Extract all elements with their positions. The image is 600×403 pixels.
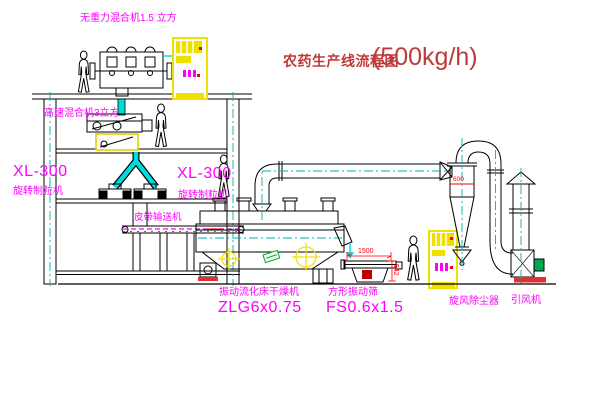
- control-cabinet-bottom: [429, 231, 457, 288]
- label-xl300-left: XL-300: [13, 164, 68, 180]
- worker-figure-ground: [408, 236, 419, 280]
- label-screen-model: FS0.6x1.5: [326, 300, 403, 316]
- cyclone-outlet-duct: [456, 141, 513, 274]
- label-top-mixer: 无重力混合机1.5 立方: [80, 14, 177, 24]
- label-belt-conveyor: 皮带输送机: [134, 213, 182, 223]
- cabinet-header: [176, 41, 202, 53]
- fan-motor: [534, 259, 544, 271]
- label-granulator-right: 旋转制粒机: [178, 191, 228, 201]
- label-cyclone: 旋风除尘器: [449, 297, 499, 307]
- vibration-motor: [198, 263, 218, 281]
- cabinet-display: [183, 70, 196, 77]
- label-screen-name: 方形振动筛: [328, 288, 378, 298]
- cad-drawing-canvas: 农药生产线流程图 (500kg/h) 无重力混合机1.5 立方 高速混合机3立方…: [0, 0, 600, 403]
- label-fan: 引风机: [511, 296, 541, 306]
- high-speed-mixer: [87, 99, 152, 150]
- granulator-right: [131, 184, 169, 199]
- dim-text-600: 600: [453, 177, 464, 184]
- control-cabinet-top: [173, 38, 207, 99]
- label-granulator-left: 旋转制粒机: [13, 187, 63, 197]
- worker-figure-roof: [78, 51, 89, 92]
- dryer-support: [313, 269, 333, 283]
- cabinet-display: [435, 263, 448, 271]
- dim-text-1500: 1500: [358, 248, 374, 255]
- gravity-free-mixer: [90, 47, 174, 96]
- drawing-capacity: (500kg/h): [372, 45, 478, 70]
- label-dryer-model: ZLG6x0.75: [218, 300, 302, 316]
- conveyor-legs: [133, 233, 194, 271]
- belt-conveyor: [122, 226, 244, 271]
- label-xl300-right: XL-300: [177, 166, 232, 182]
- label-mid-mixer: 高速混合机3立方: [44, 109, 120, 119]
- fan-base: [514, 277, 546, 283]
- y-distributor-pipe: [115, 152, 156, 187]
- dim-text-542: 542: [392, 264, 399, 276]
- induced-draft-fan: [511, 250, 546, 283]
- fluid-bed-dryer: [196, 198, 354, 283]
- label-dryer-name: 振动流化床干燥机: [219, 288, 299, 298]
- worker-figure-floor2: [156, 104, 167, 147]
